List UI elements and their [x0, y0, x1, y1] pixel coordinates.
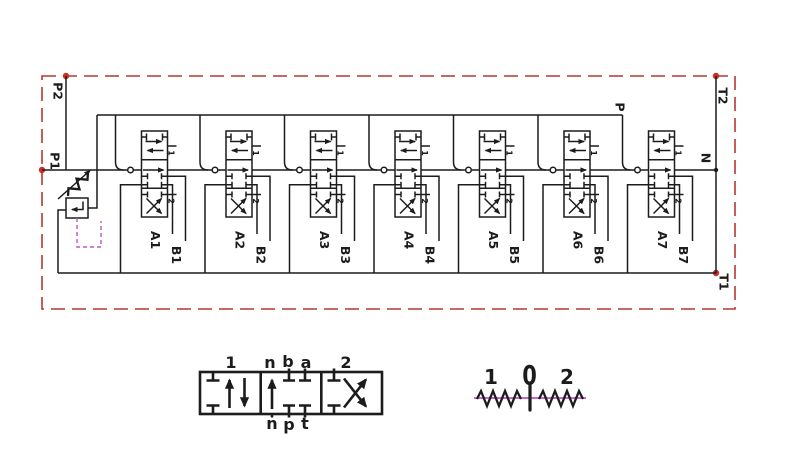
check-valve-icon: [128, 167, 134, 173]
check-valve-icon: [297, 167, 303, 173]
spool-body: [649, 131, 675, 217]
p-feed-drop: [538, 115, 546, 170]
spool-sections: 1 2 A1 B1 1 2 A2 B2: [116, 115, 693, 273]
lever-knob-0: 0: [522, 360, 537, 391]
detail-label-top-b: b: [282, 352, 293, 371]
a-port-label: A4: [402, 231, 417, 250]
detail-label-top-n: n: [264, 353, 275, 372]
position-1-label: 1: [336, 150, 345, 156]
relief-pilot-line: [77, 218, 101, 247]
position-2-label: 2: [589, 198, 598, 204]
b-port-label: B7: [676, 246, 691, 264]
label-t2: T2: [716, 87, 731, 104]
position-2-label: 2: [505, 198, 514, 204]
position-2-label: 2: [167, 198, 176, 204]
p-feed-drop: [200, 115, 208, 170]
b-port-line: [421, 176, 439, 241]
label-n: N: [699, 153, 714, 163]
a-port-label: A5: [486, 231, 501, 249]
spool-body: [480, 131, 506, 217]
hydraulic-valve-schematic: 1 2 A1 B1 1 2 A2 B2: [0, 0, 800, 450]
a-port-label: A3: [317, 231, 332, 249]
spool-body: [311, 131, 337, 217]
detail-label-bottom-p: p: [283, 415, 294, 434]
lever-spring-detail: 1 0 2: [474, 360, 586, 410]
check-valve-icon: [381, 167, 387, 173]
position-1-label: 1: [167, 150, 176, 156]
valve-section-6: 1 2 A6 B6: [538, 115, 608, 273]
spool-body: [564, 131, 590, 217]
position-1-label: 1: [251, 150, 260, 156]
relief-inlet-line: [88, 170, 97, 208]
svg-text:0: 0: [522, 360, 537, 391]
b-port-line: [337, 176, 355, 241]
lever-label-2: 2: [560, 365, 574, 389]
b-port-line: [590, 176, 608, 241]
tank-drop-line: [121, 185, 142, 273]
tank-drop-line: [374, 185, 395, 273]
valve-section-7: 1 2 A7 B7: [623, 115, 693, 273]
label-p1: P1: [48, 152, 63, 170]
a-port-label: A6: [571, 231, 586, 250]
p-feed-drop: [285, 115, 293, 170]
valve-section-2: 1 2 A2 B2: [200, 115, 270, 273]
check-valve-icon: [635, 167, 641, 173]
spool-body: [226, 131, 252, 217]
p-feed-drop: [454, 115, 462, 170]
valve-section-5: 1 2 A5 B5: [454, 115, 524, 273]
b-port-line: [506, 176, 524, 241]
b-port-label: B3: [338, 246, 353, 264]
valve-section-3: 1 2 A3 B3: [285, 115, 355, 273]
relief-outlet-line: [58, 210, 66, 273]
b-port-label: B1: [169, 246, 184, 264]
tank-drop-line: [628, 185, 649, 273]
check-valve-icon: [212, 167, 218, 173]
position-2-label: 2: [674, 198, 683, 204]
tank-drop-line: [290, 185, 311, 273]
p-feed-drop: [623, 115, 631, 170]
p-feed-drop: [116, 115, 124, 170]
spool-body: [395, 131, 421, 217]
lever-label-1: 1: [484, 365, 498, 389]
position-1-label: 1: [505, 150, 514, 156]
detail-label-top-a: a: [301, 353, 312, 372]
position-1-label: 1: [420, 150, 429, 156]
position-2-label: 2: [336, 198, 345, 204]
detail-label-bottom-t: t: [301, 414, 309, 433]
position-2-label: 2: [251, 198, 260, 204]
check-valve-icon: [466, 167, 472, 173]
tank-drop-line: [543, 185, 564, 273]
position-2-label: 2: [420, 198, 429, 204]
b-port-label: B4: [423, 246, 438, 265]
position-1-label: 1: [589, 150, 598, 156]
relief-valve: [58, 170, 101, 273]
b-port-line: [675, 176, 693, 241]
check-valve-icon: [550, 167, 556, 173]
position-1-label: 1: [674, 150, 683, 156]
detail-label-1: 1: [225, 353, 236, 372]
spool-body: [142, 131, 168, 217]
relief-body: [66, 198, 88, 218]
b-port-label: B6: [592, 246, 607, 265]
valve-section-4: 1 2 A4 B4: [369, 115, 439, 273]
label-t1: T1: [717, 273, 732, 290]
label-p: P: [613, 102, 628, 111]
tank-drop-line: [205, 185, 226, 273]
a-port-label: A1: [148, 231, 163, 249]
valve-section-1: 1 2 A1 B1: [116, 115, 186, 273]
a-port-label: A2: [233, 231, 248, 249]
b-port-line: [252, 176, 270, 241]
detail-label-2: 2: [340, 353, 351, 372]
relief-adjust-arrow: [58, 171, 90, 200]
b-port-line: [168, 176, 186, 241]
a-port-label: A7: [655, 231, 670, 249]
b-port-label: B2: [254, 246, 269, 264]
bypass-tank-junction: [714, 168, 718, 172]
detail-label-bottom-n: n: [266, 414, 277, 433]
b-port-label: B5: [507, 246, 522, 264]
tank-drop-line: [459, 185, 480, 273]
spool-function-detail: 1 n b a 2 n p t: [200, 352, 382, 434]
label-p2: P2: [51, 82, 66, 100]
p-feed-drop: [369, 115, 377, 170]
